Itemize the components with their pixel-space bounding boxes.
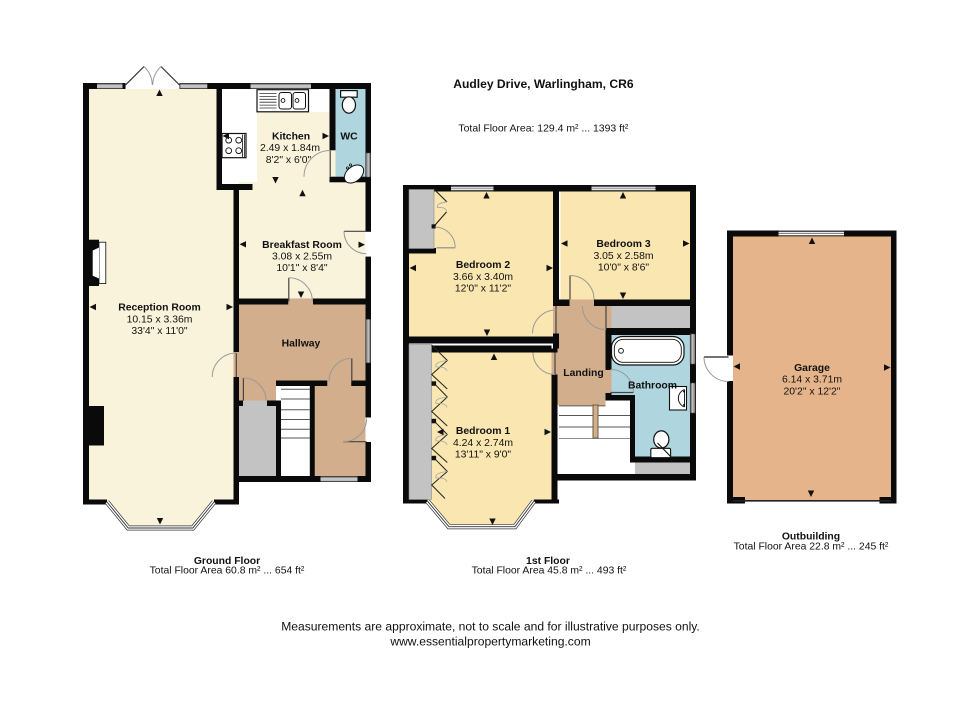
svg-text:10.15 x 3.36m: 10.15 x 3.36m: [127, 314, 193, 325]
svg-text:Total Floor Area 45.8 m² ... 4: Total Floor Area 45.8 m² ... 493 ft²: [472, 565, 627, 576]
svg-text:Total Floor Area: 129.4 m² ...: Total Floor Area: 129.4 m² ... 1393 ft²: [458, 124, 629, 135]
svg-text:13'11" x 9'0": 13'11" x 9'0": [455, 450, 512, 461]
svg-text:4.24 x 2.74m: 4.24 x 2.74m: [453, 438, 513, 449]
svg-text:12'0" x 11'2": 12'0" x 11'2": [455, 284, 512, 295]
svg-text:Hallway: Hallway: [282, 338, 321, 349]
svg-text:3.05 x 2.58m: 3.05 x 2.58m: [593, 251, 653, 262]
svg-text:8'2" x 6'0": 8'2" x 6'0": [266, 155, 312, 166]
svg-text:Bedroom 1: Bedroom 1: [456, 426, 510, 437]
svg-text:Total Floor Area 22.8 m² ... 2: Total Floor Area 22.8 m² ... 245 ft²: [734, 542, 889, 553]
svg-text:Reception Room: Reception Room: [118, 303, 201, 314]
svg-text:33'4" x 11'0": 33'4" x 11'0": [131, 326, 188, 337]
svg-text:Breakfast Room: Breakfast Room: [262, 240, 342, 251]
svg-text:3.66 x 3.40m: 3.66 x 3.40m: [453, 272, 513, 283]
svg-text:Audley Drive, Warlingham, CR6: Audley Drive, Warlingham, CR6: [453, 77, 634, 91]
svg-text:Bathroom: Bathroom: [628, 380, 677, 391]
svg-text:Bedroom 3: Bedroom 3: [596, 239, 650, 250]
svg-text:www.essentialpropertymarketing: www.essentialpropertymarketing.com: [389, 634, 590, 648]
svg-text:Measurements are approximate,: Measurements are approximate, not to sca…: [281, 620, 700, 634]
svg-text:10'0" x 8'6": 10'0" x 8'6": [598, 263, 650, 274]
svg-text:10'1" x 8'4": 10'1" x 8'4": [276, 263, 328, 274]
svg-text:Landing: Landing: [563, 368, 603, 379]
svg-text:Kitchen: Kitchen: [272, 131, 310, 142]
svg-text:2.49 x 1.84m: 2.49 x 1.84m: [260, 143, 320, 154]
svg-text:3.08 x 2.55m: 3.08 x 2.55m: [272, 252, 332, 263]
svg-text:Garage: Garage: [794, 363, 830, 374]
svg-text:6.14 x 3.71m: 6.14 x 3.71m: [782, 375, 842, 386]
svg-text:Bedroom 2: Bedroom 2: [456, 260, 510, 271]
svg-text:20'2" x 12'2": 20'2" x 12'2": [784, 386, 841, 397]
svg-text:Total Floor Area 60.8 m² ... 6: Total Floor Area 60.8 m² ... 654 ft²: [150, 565, 305, 576]
svg-text:WC: WC: [340, 131, 358, 142]
